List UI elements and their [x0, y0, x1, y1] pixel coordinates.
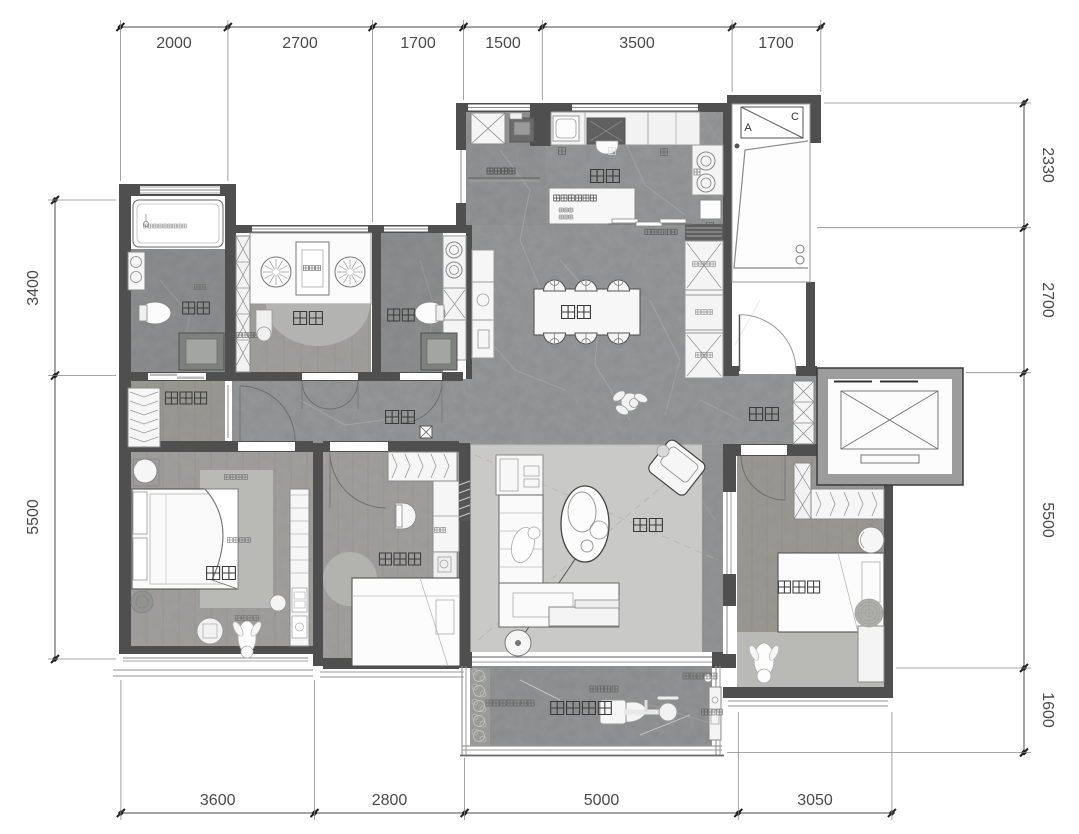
svg-text:5500: 5500	[1039, 502, 1056, 538]
svg-text:A: A	[744, 122, 752, 134]
svg-text:2700: 2700	[282, 35, 318, 52]
svg-text:3600: 3600	[200, 792, 236, 809]
svg-text:2330: 2330	[1039, 147, 1056, 183]
svg-text:1700: 1700	[758, 35, 794, 52]
svg-text:1600: 1600	[1039, 692, 1056, 728]
svg-text:5500: 5500	[25, 499, 42, 535]
svg-text:C: C	[791, 111, 799, 123]
svg-text:2000: 2000	[156, 35, 192, 52]
svg-text:3400: 3400	[25, 270, 42, 306]
svg-text:1500: 1500	[485, 35, 521, 52]
svg-text:1700: 1700	[400, 35, 436, 52]
svg-text:5000: 5000	[584, 792, 620, 809]
svg-text:2700: 2700	[1039, 282, 1056, 318]
svg-text:2800: 2800	[372, 792, 408, 809]
svg-text:3050: 3050	[797, 792, 833, 809]
svg-text:3500: 3500	[619, 35, 655, 52]
